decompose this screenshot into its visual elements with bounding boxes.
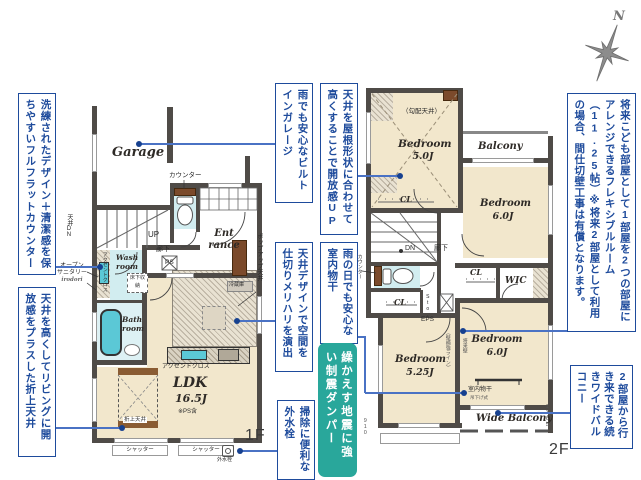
garage-door-opening	[92, 134, 97, 172]
wall	[458, 88, 463, 212]
callout-dot	[461, 390, 467, 396]
dn-label: DN	[405, 245, 415, 253]
callout-line	[364, 336, 366, 393]
floor1-label: 1F	[245, 427, 266, 445]
floorplan-page: 洗練されたデザイン＋清潔感を保ちやすいフルフラットカウンター 天井を高くしてリビ…	[0, 0, 641, 480]
garage-pillar	[167, 107, 173, 163]
future-wall-label: 将来壁	[461, 338, 467, 362]
window	[548, 325, 553, 380]
accent-cloth-kitchen-label: アクセントクロス	[162, 364, 210, 371]
wall	[142, 245, 200, 250]
note-coffered-ceiling: 天井を高くしてリビングに開放感をプラスした折上天井	[18, 287, 56, 457]
wall	[455, 298, 553, 303]
bedroom-nw-size: 5.0J	[398, 152, 448, 163]
window	[114, 438, 168, 443]
counter-label-1f: カウンター	[169, 172, 202, 179]
wic-label: WIC	[505, 276, 526, 286]
window	[180, 438, 234, 443]
eaves-strip	[380, 433, 460, 444]
callout-line	[498, 412, 570, 414]
bathroom-label: Bath room	[122, 316, 142, 333]
window	[398, 423, 440, 428]
note-ceiling-design: 天井デザインで空間を仕切りメリハリを演出	[275, 242, 313, 372]
wall	[496, 263, 500, 303]
bathtub	[100, 309, 122, 356]
callout-dot	[119, 425, 125, 431]
bedroom-se-size: 6.0J	[470, 348, 524, 359]
note-roof-ceiling: 天井を屋根形状に合わせて高くすることで開放感UP	[320, 83, 358, 235]
bedroom-nw-cabinet	[443, 90, 458, 101]
callout-dot	[237, 448, 243, 454]
sloped-corner	[371, 93, 393, 121]
callout-dot	[136, 141, 142, 147]
wall	[142, 245, 147, 365]
callout-dot	[495, 410, 501, 416]
wic-shelf	[533, 265, 548, 298]
shutter-left-label: シャッター	[112, 447, 168, 453]
callout-dot	[460, 328, 466, 334]
bedroom-se-label: Bedroom	[470, 334, 524, 346]
wall	[92, 205, 170, 210]
cl-west-label: CL	[394, 298, 406, 307]
bedroom-sw-size: 5.25J	[395, 368, 445, 379]
shutter-right-label: シャッター	[178, 447, 234, 453]
bath-sink	[124, 344, 140, 356]
compass-north-label: N	[613, 10, 625, 25]
note-seismic-damper: 繰かえす地震に強い制震ダンパー	[318, 343, 357, 477]
wall	[548, 136, 553, 433]
wall	[196, 183, 200, 232]
drying-type-label: 吊下げ式	[470, 395, 488, 400]
coffered-bar-top	[118, 368, 158, 375]
kitchen-sink	[181, 350, 207, 360]
toilet-counter-2f	[374, 266, 382, 286]
wall	[92, 360, 147, 365]
note-wide-balcony: 2部屋から行き来できる続きワイドバルコニー	[570, 365, 633, 449]
callout-line	[463, 330, 567, 332]
wall	[420, 290, 423, 316]
sloped-corner	[371, 176, 397, 193]
hallway-label-1f: 廊下	[156, 246, 170, 254]
note-garage: 雨でも安心なビルトインガレージ	[275, 83, 313, 203]
cl-mid-label: CL	[470, 268, 482, 277]
dim-1365: 1365	[544, 404, 550, 430]
balcony-rail	[461, 131, 548, 134]
callout-dot	[397, 173, 403, 179]
bedroom-ne-label: Bedroom	[480, 198, 526, 210]
callout-line	[355, 175, 400, 177]
callout-line	[53, 266, 100, 268]
ldk-size-label: 16.5J	[175, 393, 207, 406]
window	[366, 112, 371, 164]
note-flexible-room: 将来こども部屋として1部屋を2つの部屋にアレンジできるフレキシブルルーム（11.…	[567, 93, 636, 332]
floor2-label: 2F	[549, 441, 570, 459]
underfloor-storage-label: 床下収納	[128, 275, 147, 290]
kitchen-worktop	[202, 306, 226, 330]
entrance-door-opening	[208, 183, 242, 188]
eps-label: EPS	[421, 316, 434, 323]
callout-line	[365, 392, 464, 394]
wall	[371, 288, 421, 292]
kitchen-stove	[218, 349, 239, 361]
stairs-1f	[97, 210, 168, 248]
toilet-counter-1f	[174, 188, 196, 196]
entrance-label: Ent rance	[208, 228, 240, 251]
cl-north-label: CL	[400, 195, 412, 204]
wall	[97, 300, 142, 303]
callout-dot	[97, 264, 103, 270]
stairs-2f	[371, 213, 437, 262]
window	[92, 378, 97, 422]
ps-label: PS	[165, 259, 174, 266]
note-indoor-drying: 雨の日でも安心な室内物干	[320, 242, 358, 344]
note-flat-counter: 洗練されたデザイン＋清潔感を保ちやすいフルフラットカウンター	[18, 93, 56, 275]
shoe-cabinet	[200, 188, 257, 210]
dim-910: 910	[362, 418, 368, 440]
outdoor-faucet-label: 外水栓	[217, 458, 232, 464]
note-outdoor-faucet: 掃除に便利な外水栓	[277, 400, 315, 480]
window	[257, 296, 262, 334]
compass-icon	[575, 17, 639, 89]
ceiling-dn-label: 天井DN	[65, 214, 72, 246]
coffered-ceiling-label: 折上天井	[123, 417, 147, 423]
fridge-label: 冷蔵庫	[229, 283, 244, 289]
garage-label: Garage	[112, 146, 164, 161]
wall-reinforce-label: （壁補強ライン）	[444, 330, 450, 396]
callout-line	[53, 427, 122, 429]
callout-dot	[234, 318, 240, 324]
callout-line	[240, 450, 277, 452]
window	[92, 312, 97, 342]
balcony-label: Balcony	[478, 141, 523, 153]
ldk-label: LDK	[173, 375, 207, 391]
callout-line	[237, 320, 275, 322]
open-sanitary-brand: irodori	[61, 277, 82, 283]
bedroom-nw-label: Bedroom	[398, 138, 448, 150]
window	[378, 345, 383, 393]
ldk-ps-note: ※PS含	[178, 409, 197, 416]
wall	[366, 208, 463, 213]
open-sanitary-line2: サニタリー	[57, 270, 87, 276]
sloped-ceiling-label: （勾配天井）	[402, 108, 441, 115]
bedroom-sw-label: Bedroom	[395, 354, 445, 366]
hallway-label-2f: 廊下	[434, 245, 448, 253]
sto-label: Sto.	[424, 294, 430, 314]
window	[472, 158, 534, 163]
toilet-1f-floor	[172, 195, 196, 229]
door-opening	[166, 273, 194, 278]
wide-balcony-label: Wide Balcony	[476, 413, 552, 425]
indoor-drying-label: 室内物干	[468, 387, 492, 394]
wall	[437, 213, 441, 318]
up-label: UP	[148, 230, 159, 239]
popup-ceiling-label: ポップアップ天井	[255, 233, 262, 297]
window	[548, 185, 553, 235]
bedroom-ne-size: 6.0J	[480, 212, 526, 223]
callout-line	[139, 143, 275, 145]
accent-cloth-wall-label: アクセントクロス	[101, 252, 107, 300]
washroom-label: Wash room	[112, 254, 142, 271]
